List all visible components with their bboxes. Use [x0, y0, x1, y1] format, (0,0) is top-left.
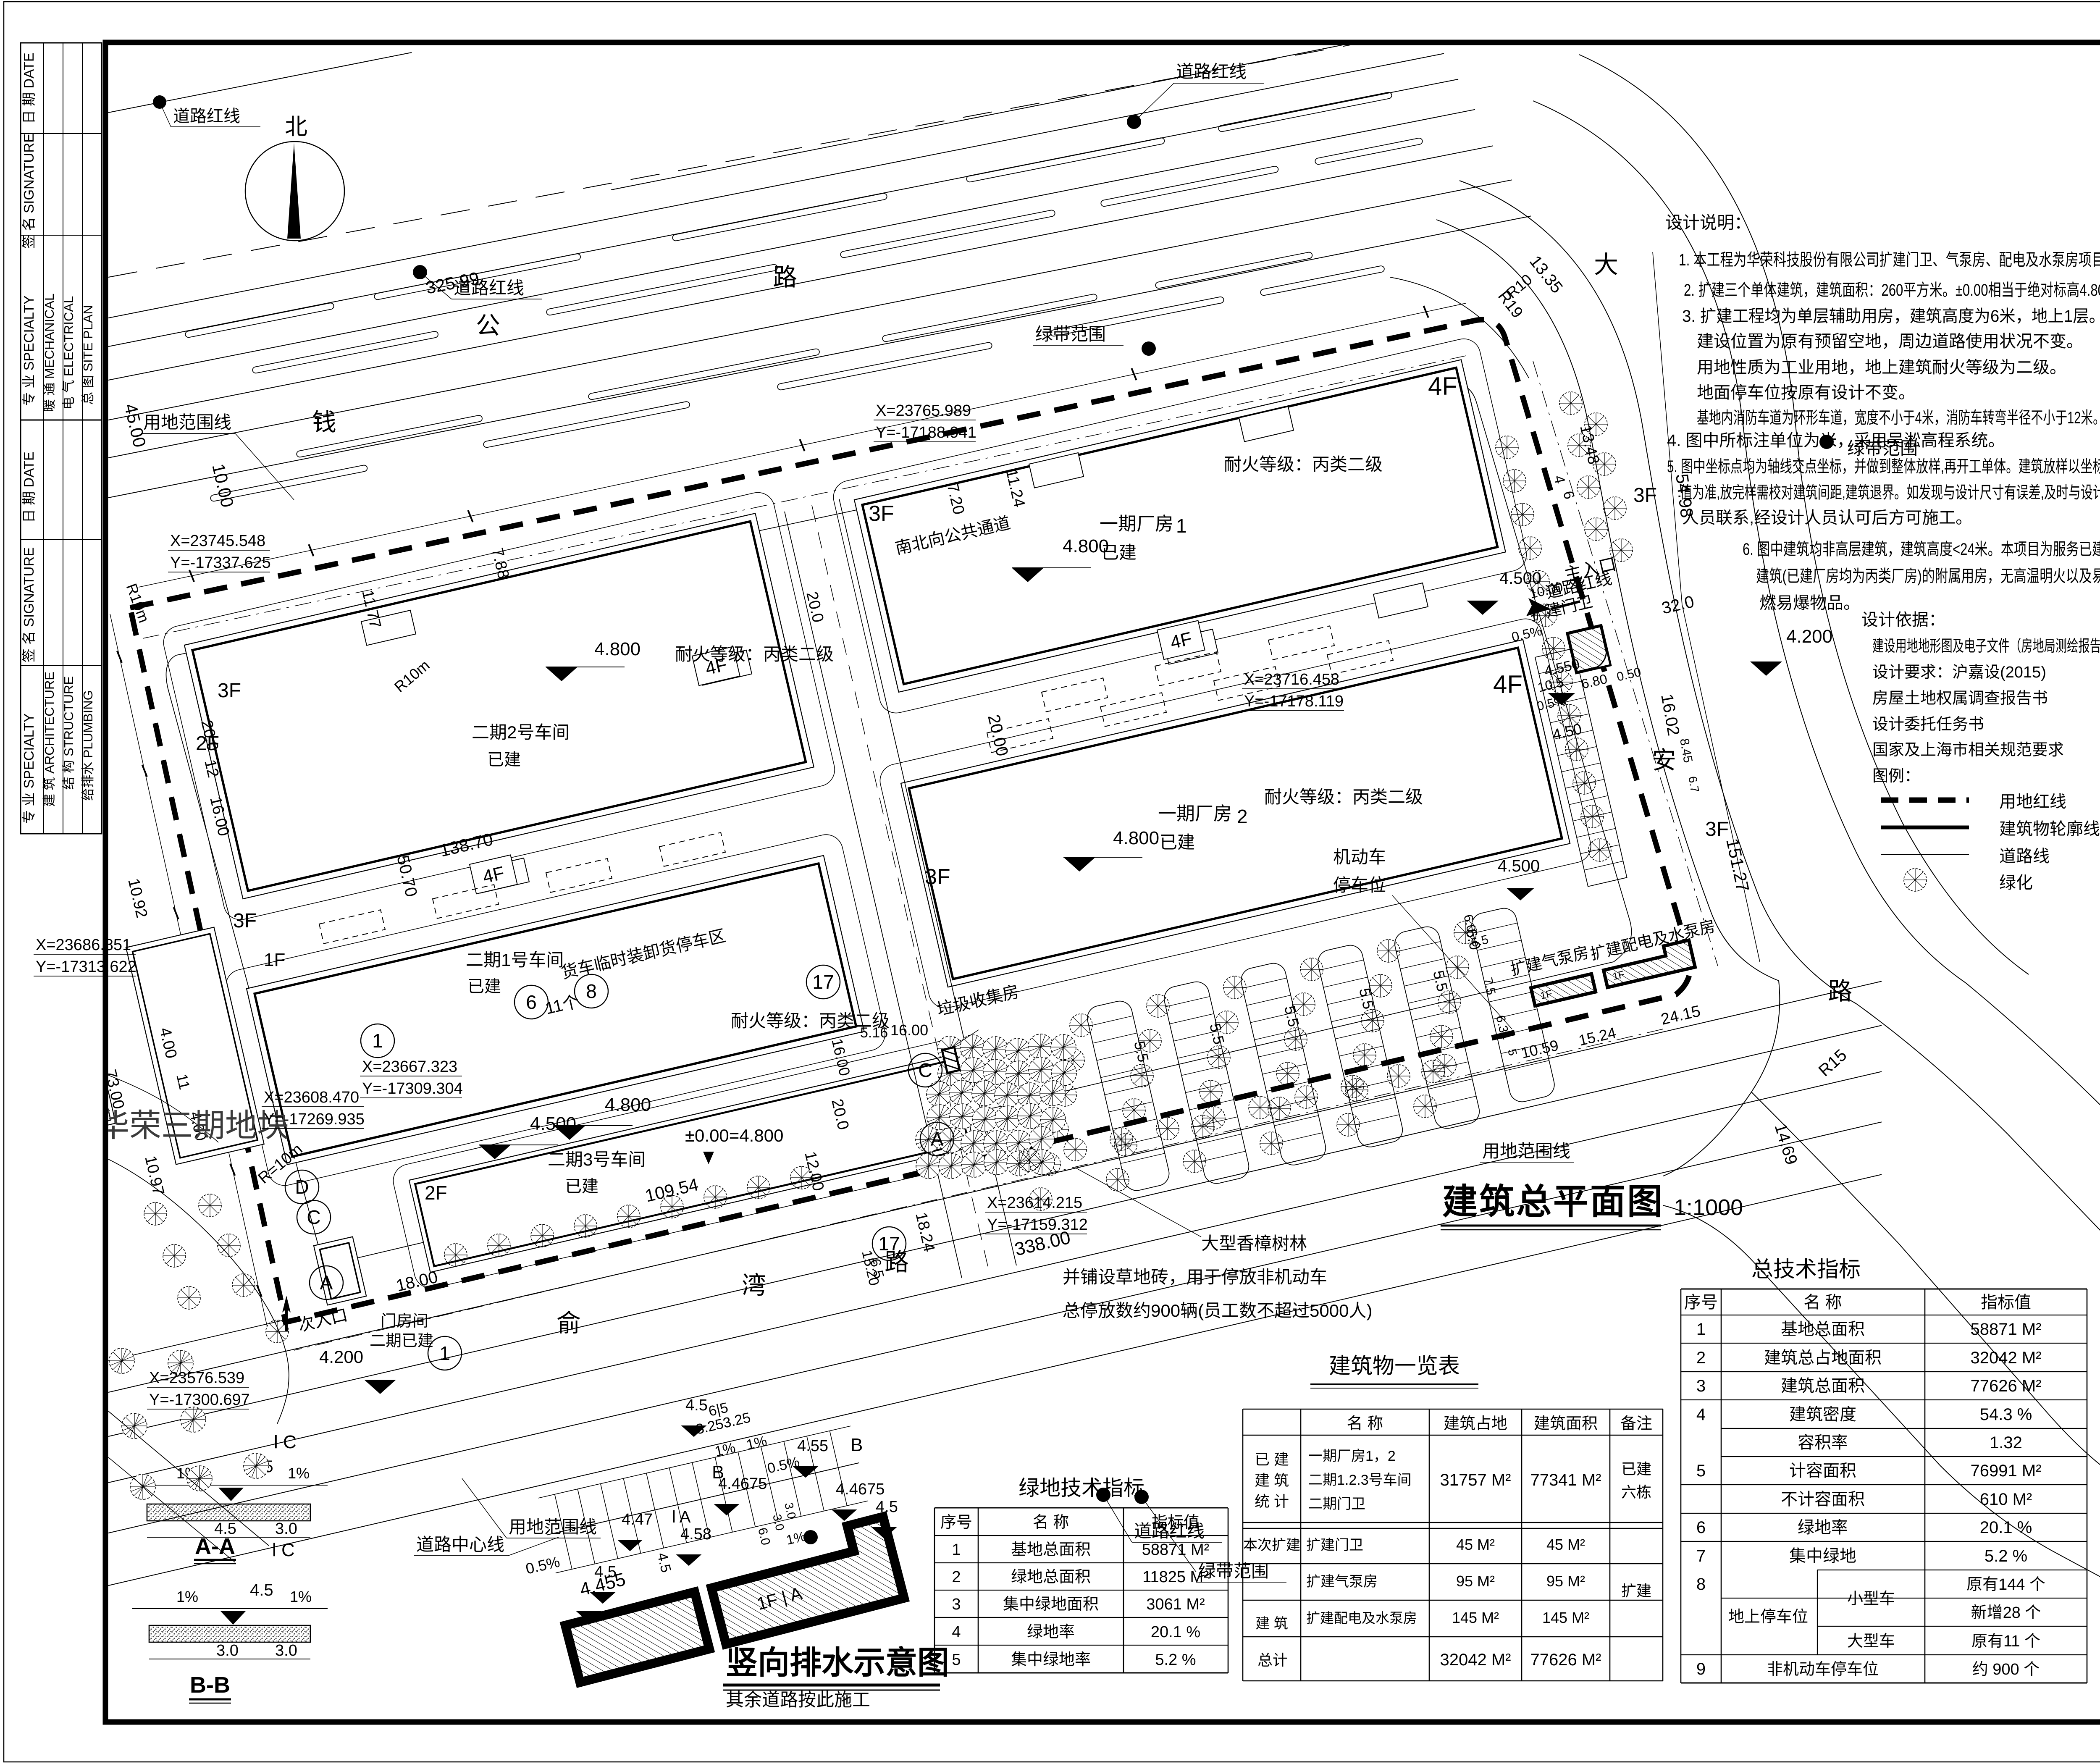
svg-text:9: 9 [1696, 1660, 1706, 1678]
svg-text:并铺设草地砖，用于停放非机动车: 并铺设草地砖，用于停放非机动车 [1063, 1267, 1327, 1287]
svg-text:4.800: 4.800 [1063, 536, 1109, 556]
svg-text:4.4675: 4.4675 [718, 1475, 767, 1493]
svg-text:1: 1 [1696, 1320, 1706, 1339]
svg-text:17: 17 [878, 1233, 900, 1255]
svg-text:建筑面积: 建筑面积 [1534, 1415, 1598, 1433]
svg-text:4: 4 [952, 1623, 961, 1641]
svg-text:基地总面积: 基地总面积 [1011, 1541, 1091, 1559]
svg-text:绿地率: 绿地率 [1798, 1518, 1848, 1537]
svg-text:建 筑 ARCHITECTURE: 建 筑 ARCHITECTURE [42, 672, 57, 807]
svg-text:燃易爆物品。: 燃易爆物品。 [1759, 594, 1860, 612]
svg-text:8: 8 [586, 980, 597, 1002]
svg-text:道路红线: 道路红线 [1176, 62, 1247, 81]
svg-text:X=23765.989: X=23765.989 [876, 402, 971, 420]
svg-text:约 900 个: 约 900 个 [1972, 1661, 2040, 1678]
svg-text:新增28 个: 新增28 个 [1971, 1604, 2041, 1622]
svg-text:X=23745.548: X=23745.548 [170, 532, 265, 550]
svg-text:95 M²: 95 M² [1456, 1572, 1495, 1590]
svg-text:32042 M²: 32042 M² [1971, 1349, 2042, 1367]
svg-text:4.47: 4.47 [622, 1511, 653, 1528]
svg-text:序号: 序号 [1684, 1293, 1718, 1312]
svg-text:145 M²: 145 M² [1542, 1609, 1589, 1626]
svg-text:门房间: 门房间 [381, 1312, 428, 1330]
svg-text:1:1000: 1:1000 [1674, 1195, 1743, 1220]
svg-text:1F: 1F [264, 950, 285, 970]
svg-text:一期厂房: 一期厂房 [1158, 803, 1232, 824]
svg-text:6. 图中建筑均非高层建筑，建筑高度<24米。本项目为服务已: 6. 图中建筑均非高层建筑，建筑高度<24米。本项目为服务已建 [1743, 540, 2100, 559]
svg-text:2F: 2F [425, 1182, 447, 1204]
svg-text:安: 安 [1652, 747, 1676, 774]
svg-text:建 筑: 建 筑 [1255, 1472, 1289, 1489]
svg-text:45 M²: 45 M² [1456, 1536, 1495, 1553]
svg-text:3.0: 3.0 [275, 1520, 297, 1538]
svg-text:原有11 个: 原有11 个 [1971, 1633, 2040, 1650]
svg-text:1: 1 [439, 1342, 450, 1364]
svg-text:X=23716.458: X=23716.458 [1244, 671, 1339, 688]
svg-text:8: 8 [1696, 1575, 1706, 1593]
svg-text:大型香樟树林: 大型香樟树林 [1201, 1234, 1307, 1253]
svg-text:其余道路按此施工: 其余道路按此施工 [726, 1690, 870, 1710]
svg-text:A-A: A-A [195, 1534, 235, 1559]
svg-text:人员联系,经设计人员认可后方可施工。: 人员联系,经设计人员认可后方可施工。 [1682, 509, 1972, 527]
svg-text:建设用地地形图及电子文件（房地局测绘报告): 建设用地地形图及电子文件（房地局测绘报告) [1872, 638, 2100, 655]
svg-text:值为准,放完样需校对建筑间距,建筑退界。如发现与设计尺寸有误: 值为准,放完样需校对建筑间距,建筑退界。如发现与设计尺寸有误差,及时与设计 [1680, 483, 2100, 502]
svg-text:A: A [931, 1128, 944, 1150]
svg-text:六栋: 六栋 [1621, 1483, 1651, 1501]
svg-text:4.200: 4.200 [1786, 626, 1832, 647]
svg-text:总技术指标: 总技术指标 [1751, 1257, 1861, 1282]
svg-text:4F: 4F [1493, 670, 1522, 698]
svg-text:扩建气泵房: 扩建气泵房 [1306, 1574, 1378, 1590]
svg-text:58871 M²: 58871 M² [1971, 1320, 2042, 1339]
svg-text:总计: 总计 [1257, 1651, 1288, 1669]
svg-text:名 称: 名 称 [1803, 1293, 1842, 1312]
svg-text:1: 1 [1176, 515, 1187, 537]
svg-text:容积率: 容积率 [1798, 1433, 1848, 1452]
svg-text:电 气 ELECTRICAL: 电 气 ELECTRICAL [61, 296, 76, 409]
svg-text:3061 M²: 3061 M² [1146, 1596, 1205, 1613]
svg-text:建筑总面积: 建筑总面积 [1781, 1377, 1865, 1395]
svg-text:145 M²: 145 M² [1452, 1609, 1499, 1626]
svg-text:3F: 3F [1705, 818, 1729, 840]
svg-text:签 名 SIGNATURE: 签 名 SIGNATURE [21, 547, 37, 662]
svg-text:二期门卫: 二期门卫 [1308, 1496, 1365, 1512]
svg-text:计容面积: 计容面积 [1789, 1462, 1856, 1480]
svg-text:610 M²: 610 M² [1980, 1490, 2032, 1509]
svg-text:用地范围线: 用地范围线 [143, 412, 231, 432]
svg-text:道路中心线: 道路中心线 [416, 1535, 504, 1554]
svg-text:绿地技术指标: 绿地技术指标 [1018, 1476, 1144, 1500]
svg-text:已建: 已建 [1160, 832, 1195, 852]
svg-text:结 构 STRUCTURE: 结 构 STRUCTURE [61, 676, 76, 790]
svg-text:不计容面积: 不计容面积 [1781, 1490, 1865, 1509]
svg-text:Y=-17188.941: Y=-17188.941 [876, 424, 976, 441]
svg-text:1%: 1% [176, 1588, 198, 1605]
svg-text:大: 大 [1594, 251, 1618, 278]
svg-text:绿化: 绿化 [1999, 874, 2033, 892]
svg-text:耐火等级：丙类二级: 耐火等级：丙类二级 [1264, 787, 1423, 807]
svg-text:4.4675: 4.4675 [836, 1480, 885, 1498]
svg-text:钱: 钱 [312, 409, 336, 436]
svg-text:X=23667.323: X=23667.323 [362, 1058, 457, 1076]
svg-text:建筑密度: 建筑密度 [1789, 1405, 1856, 1424]
svg-text:4.800: 4.800 [605, 1095, 651, 1115]
svg-text:5: 5 [1696, 1462, 1706, 1480]
svg-text:机动车: 机动车 [1333, 847, 1386, 867]
svg-text:6: 6 [526, 991, 537, 1013]
svg-text:4.55: 4.55 [797, 1437, 828, 1455]
svg-text:3: 3 [952, 1596, 961, 1613]
svg-text:Y=-17178.119: Y=-17178.119 [1244, 693, 1344, 710]
svg-text:已建: 已建 [1621, 1460, 1651, 1478]
svg-text:4.500: 4.500 [1499, 569, 1541, 588]
svg-text:5.2 %: 5.2 % [1155, 1651, 1196, 1669]
svg-text:C: C [918, 1059, 932, 1081]
svg-text:一期厂房1，2: 一期厂房1，2 [1308, 1448, 1396, 1464]
svg-text:5: 5 [952, 1651, 961, 1669]
svg-text:5. 图中坐标点均为轴线交点坐标，并做到整体放样,再开工单体: 5. 图中坐标点均为轴线交点坐标，并做到整体放样,再开工单体。建筑放样以坐标 [1667, 457, 2100, 476]
svg-text:77626 M²: 77626 M² [1530, 1651, 1601, 1669]
svg-text:基地内消防车道为环形车道，宽度不小于4米，消防车转弯半径不小: 基地内消防车道为环形车道，宽度不小于4米，消防车转弯半径不小于12米。 [1697, 409, 2100, 427]
svg-text:B-B: B-B [190, 1672, 230, 1698]
svg-text:路: 路 [773, 264, 797, 291]
svg-text:建筑物一览表: 建筑物一览表 [1329, 1354, 1460, 1378]
svg-text:建 筑: 建 筑 [1255, 1616, 1288, 1632]
svg-text:1.32: 1.32 [1990, 1433, 2022, 1452]
svg-text:6: 6 [1696, 1518, 1706, 1537]
svg-text:4.200: 4.200 [319, 1347, 363, 1367]
svg-text:B: B [712, 1462, 724, 1483]
svg-text:1: 1 [952, 1541, 961, 1559]
svg-text:X=23614.215: X=23614.215 [987, 1194, 1082, 1212]
svg-text:耐火等级：丙类二级: 耐火等级：丙类二级 [675, 644, 834, 664]
svg-text:俞: 俞 [556, 1310, 581, 1337]
svg-text:7: 7 [1696, 1547, 1706, 1565]
svg-text:专 业 SPECIALTY: 专 业 SPECIALTY [21, 295, 37, 406]
svg-text:Y=-17309.304: Y=-17309.304 [362, 1080, 463, 1097]
svg-text:C: C [307, 1206, 320, 1228]
svg-text:地面停车位按原有设计不变。: 地面停车位按原有设计不变。 [1697, 383, 1915, 402]
svg-text:设计委托任务书: 设计委托任务书 [1872, 716, 1984, 733]
svg-text:4.58: 4.58 [680, 1525, 711, 1543]
svg-text:绿带范围: 绿带范围 [1847, 438, 1918, 458]
svg-text:指标值: 指标值 [1981, 1293, 2031, 1312]
svg-text:Y=-17337.625: Y=-17337.625 [170, 554, 271, 572]
svg-text:设计要求：沪嘉设(2015): 设计要求：沪嘉设(2015) [1872, 664, 2046, 681]
svg-text:大型车: 大型车 [1847, 1633, 1895, 1650]
svg-text:耐火等级：丙类二级: 耐火等级：丙类二级 [731, 1011, 890, 1031]
svg-text:用地红线: 用地红线 [1999, 793, 2066, 811]
svg-text:日 期 DATE: 日 期 DATE [21, 52, 37, 124]
svg-text:4.5: 4.5 [876, 1498, 898, 1516]
svg-text:4.500: 4.500 [530, 1113, 576, 1134]
svg-text:地上停车位: 地上停车位 [1728, 1608, 1808, 1626]
svg-text:二期1.2.3号车间: 二期1.2.3号车间 [1308, 1472, 1412, 1488]
svg-text:竖向排水示意图: 竖向排水示意图 [726, 1645, 949, 1681]
svg-text:4: 4 [1696, 1405, 1706, 1424]
svg-text:45 M²: 45 M² [1546, 1536, 1585, 1553]
svg-text:用地性质为工业用地，地上建筑耐火等级为二级。: 用地性质为工业用地，地上建筑耐火等级为二级。 [1697, 358, 2066, 377]
svg-text:4.800: 4.800 [1113, 828, 1159, 848]
svg-text:4F: 4F [1428, 372, 1457, 400]
svg-text:备注: 备注 [1620, 1415, 1652, 1433]
svg-text:已 建: 已 建 [1255, 1451, 1289, 1468]
svg-text:已建: 已建 [565, 1177, 598, 1196]
svg-text:31757 M²: 31757 M² [1440, 1471, 1511, 1489]
svg-text:道路红线: 道路红线 [1134, 1521, 1205, 1541]
svg-text:暖 通 MECHANICAL: 暖 通 MECHANICAL [42, 294, 57, 412]
svg-text:54.3 %: 54.3 % [1980, 1405, 2032, 1424]
svg-text:3: 3 [1696, 1377, 1706, 1395]
svg-text:扩建: 扩建 [1621, 1582, 1651, 1599]
svg-text:二期3号车间: 二期3号车间 [548, 1150, 646, 1169]
svg-text:耐火等级：丙类二级: 耐火等级：丙类二级 [1224, 454, 1383, 474]
svg-text:房屋土地权属调查报告书: 房屋土地权属调查报告书 [1872, 690, 2048, 707]
svg-text:建筑(已建厂房均为丙类厂房)的附属用房，无高温明火以及易: 建筑(已建厂房均为丙类厂房)的附属用房，无高温明火以及易 [1756, 567, 2100, 585]
svg-text:3F: 3F [1633, 484, 1657, 507]
svg-text:X=23608.470: X=23608.470 [264, 1089, 359, 1106]
svg-text:一期厂房: 一期厂房 [1100, 514, 1173, 534]
svg-text:3.0: 3.0 [216, 1642, 239, 1659]
svg-text:Y=-17300.697: Y=-17300.697 [149, 1391, 250, 1409]
svg-text:道路红线: 道路红线 [173, 107, 240, 126]
svg-text:北: 北 [285, 114, 307, 139]
svg-text:20.1 %: 20.1 % [1151, 1623, 1200, 1641]
svg-text:名 称: 名 称 [1347, 1415, 1383, 1433]
svg-text:湾: 湾 [742, 1272, 766, 1299]
svg-text:77341 M²: 77341 M² [1530, 1471, 1601, 1489]
svg-text:路: 路 [1828, 978, 1852, 1005]
svg-text:X=23686.851: X=23686.851 [36, 936, 131, 954]
svg-text:±0.00=4.800: ±0.00=4.800 [685, 1126, 783, 1145]
svg-text:集中绿地: 集中绿地 [1789, 1547, 1856, 1565]
svg-text:绿地总面积: 绿地总面积 [1011, 1568, 1091, 1586]
svg-text:4.800: 4.800 [594, 639, 640, 659]
svg-text:道路线: 道路线 [1999, 847, 2050, 866]
svg-text:3. 扩建工程均为单层辅助用房，建筑高度为6米，地上1层。: 3. 扩建工程均为单层辅助用房，建筑高度为6米，地上1层。 [1682, 307, 2100, 325]
svg-text:3F: 3F [218, 680, 241, 702]
svg-text:停车位: 停车位 [1333, 875, 1386, 895]
svg-text:1%: 1% [290, 1588, 312, 1605]
svg-text:建筑占地: 建筑占地 [1444, 1415, 1507, 1433]
svg-text:1: 1 [372, 1030, 383, 1052]
svg-text:2: 2 [1237, 806, 1248, 827]
svg-text:A: A [320, 1272, 333, 1294]
svg-text:用地范围线: 用地范围线 [1482, 1141, 1570, 1161]
svg-text:国家及上海市相关规范要求: 国家及上海市相关规范要求 [1872, 741, 2064, 759]
svg-text:32042 M²: 32042 M² [1440, 1651, 1511, 1669]
svg-text:2. 扩建三个单体建筑，建筑面积：260平方米。±0.00相: 2. 扩建三个单体建筑，建筑面积：260平方米。±0.00相当于绝对标高4.80 [1684, 281, 2100, 299]
svg-text:1. 本工程为华荣科技股份有限公司扩建门卫、气泵房、配电及水: 1. 本工程为华荣科技股份有限公司扩建门卫、气泵房、配电及水泵房项目 [1679, 251, 2100, 269]
svg-text:建筑物轮廓线: 建筑物轮廓线 [1999, 820, 2100, 838]
svg-text:统 计: 统 计 [1255, 1493, 1289, 1510]
svg-text:绿带范围: 绿带范围 [1035, 324, 1106, 344]
svg-text:总停放数约900辆(员工数不超过5000人): 总停放数约900辆(员工数不超过5000人) [1063, 1301, 1372, 1320]
svg-text:扩建配电及水泵房: 扩建配电及水泵房 [1306, 1610, 1417, 1626]
svg-text:4. 图中所标注单位为米，采用吴淞高程系统。: 4. 图中所标注单位为米，采用吴淞高程系统。 [1667, 431, 2005, 450]
svg-text:扩建门卫: 扩建门卫 [1306, 1537, 1363, 1553]
svg-text:集中绿地率: 集中绿地率 [1011, 1651, 1091, 1669]
svg-text:设计依据：: 设计依据： [1861, 611, 1945, 629]
svg-text:2: 2 [1696, 1349, 1706, 1367]
svg-text:日 期 DATE: 日 期 DATE [21, 451, 37, 523]
svg-text:l C: l C [274, 1432, 297, 1452]
svg-text:基地总面积: 基地总面积 [1781, 1320, 1865, 1339]
svg-text:华荣三期地块: 华荣三期地块 [97, 1108, 289, 1144]
svg-text:二期2号车间: 二期2号车间 [472, 722, 570, 742]
svg-text:76991 M²: 76991 M² [1971, 1462, 2042, 1480]
svg-text:给排水 PLUMBING: 给排水 PLUMBING [81, 690, 95, 801]
svg-text:4.5: 4.5 [685, 1396, 708, 1414]
svg-text:Y=-17313.622: Y=-17313.622 [36, 958, 136, 976]
svg-text:小型车: 小型车 [1847, 1590, 1895, 1608]
svg-text:X=23576.539: X=23576.539 [149, 1369, 244, 1387]
svg-text:本次扩建: 本次扩建 [1243, 1537, 1300, 1553]
svg-text:已建: 已建 [487, 751, 521, 769]
svg-text:序号: 序号 [940, 1514, 972, 1531]
svg-text:绿带范围: 绿带范围 [1198, 1561, 1269, 1581]
svg-text:77626 M²: 77626 M² [1971, 1377, 2042, 1395]
svg-text:3F: 3F [869, 501, 894, 526]
svg-text:3.0: 3.0 [275, 1642, 297, 1659]
svg-text:图例：: 图例： [1872, 767, 1920, 785]
svg-text:建筑总占地面积: 建筑总占地面积 [1764, 1349, 1882, 1367]
svg-text:B: B [850, 1435, 863, 1455]
svg-text:建设位置为原有预留空地，周边道路使用状况不变。: 建设位置为原有预留空地，周边道路使用状况不变。 [1697, 332, 2083, 351]
svg-text:二期已建: 二期已建 [370, 1332, 433, 1350]
svg-text:道路红线: 道路红线 [454, 278, 524, 298]
svg-text:总 图 SITE PLAN: 总 图 SITE PLAN [81, 305, 95, 405]
svg-text:二期1号车间: 二期1号车间 [466, 950, 564, 970]
svg-text:4.5: 4.5 [250, 1581, 273, 1599]
svg-text:Y=-17159.312: Y=-17159.312 [987, 1216, 1088, 1234]
svg-text:2: 2 [952, 1568, 961, 1586]
svg-text:建筑总平面图: 建筑总平面图 [1442, 1182, 1664, 1221]
svg-text:3F: 3F [233, 910, 257, 932]
svg-text:D: D [295, 1176, 309, 1198]
svg-text:Y=-17269.935: Y=-17269.935 [264, 1110, 365, 1128]
svg-text:绿地率: 绿地率 [1027, 1623, 1075, 1641]
svg-text:4.500: 4.500 [1498, 857, 1540, 875]
svg-text:4.5: 4.5 [594, 1563, 617, 1581]
svg-text:名 称: 名 称 [1033, 1514, 1069, 1531]
svg-text:公: 公 [476, 312, 500, 339]
svg-text:非机动车停车位: 非机动车停车位 [1767, 1661, 1879, 1678]
svg-text:集中绿地面积: 集中绿地面积 [1003, 1596, 1099, 1613]
svg-text:1%: 1% [288, 1465, 310, 1482]
svg-text:l A: l A [672, 1508, 691, 1526]
svg-text:已建: 已建 [467, 977, 501, 996]
svg-text:17: 17 [812, 971, 834, 993]
svg-text:5.2 %: 5.2 % [1984, 1547, 2027, 1565]
svg-text:原有144 个: 原有144 个 [1966, 1576, 2045, 1593]
svg-text:签 名 SIGNATURE: 签 名 SIGNATURE [21, 134, 37, 249]
svg-text:16.00: 16.00 [890, 1021, 928, 1039]
svg-text:专 业 SPECIALTY: 专 业 SPECIALTY [21, 713, 37, 824]
svg-text:95 M²: 95 M² [1546, 1572, 1585, 1590]
